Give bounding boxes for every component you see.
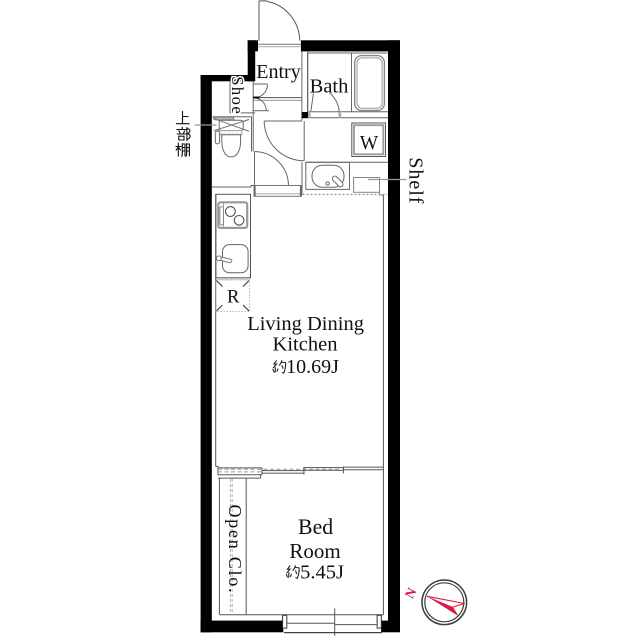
svg-text:5.45J: 5.45J [300,561,344,583]
svg-text:Room: Room [289,539,340,563]
svg-text:Living Dining: Living Dining [247,313,364,335]
svg-text:10.69J: 10.69J [286,356,339,378]
svg-text:Shoe.: Shoe. [228,76,247,121]
svg-text:Shelf: Shelf [405,157,427,204]
svg-text:Bed: Bed [298,515,333,539]
svg-text:Kitchen: Kitchen [273,334,338,356]
svg-text:Open Clo.: Open Clo. [225,505,245,595]
svg-text:W: W [360,133,379,154]
svg-text:R: R [227,288,240,308]
svg-text:Entry: Entry [256,61,300,83]
svg-text:Bath: Bath [310,75,349,97]
